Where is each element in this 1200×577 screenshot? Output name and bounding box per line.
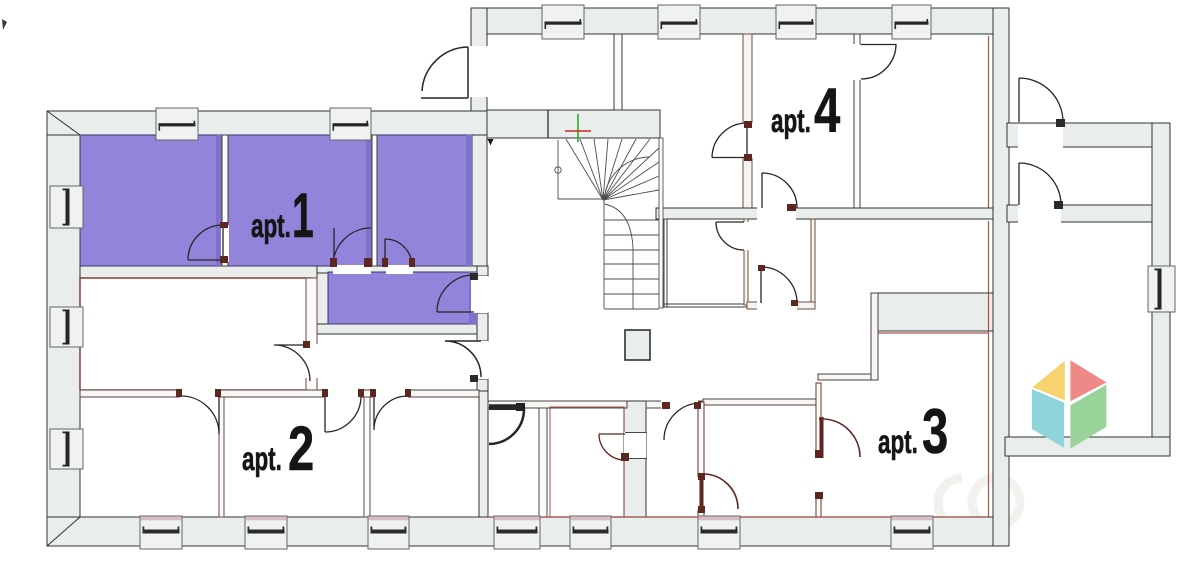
svg-text:apt.: apt. — [771, 102, 811, 139]
svg-text:2: 2 — [288, 413, 314, 483]
svg-text:1: 1 — [292, 182, 314, 252]
svg-text:apt.: apt. — [878, 423, 918, 460]
svg-text:4: 4 — [814, 75, 840, 145]
svg-text:apt.: apt. — [242, 440, 282, 477]
svg-text:apt.: apt. — [251, 207, 291, 244]
svg-text:3: 3 — [922, 396, 948, 466]
